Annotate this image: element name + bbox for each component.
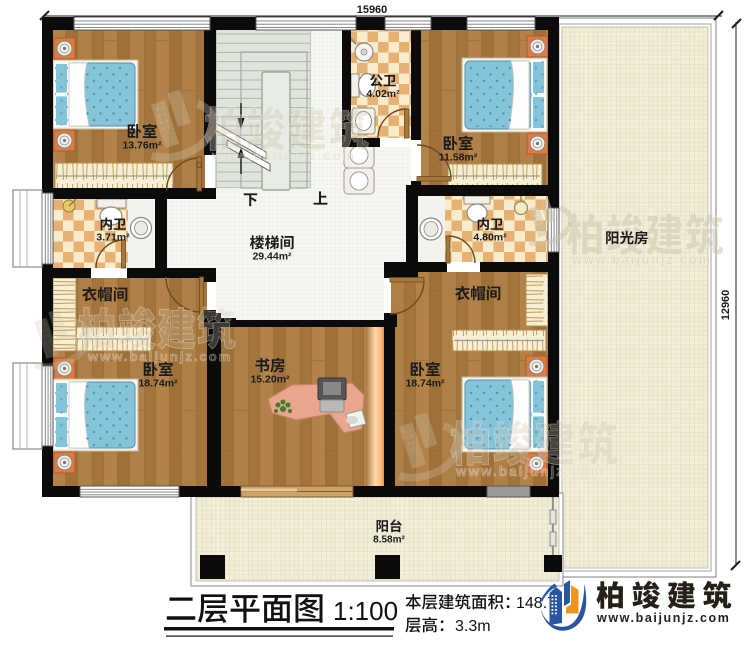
- svg-text:1:100: 1:100: [333, 596, 398, 626]
- svg-text:www.baijunjz.com: www.baijunjz.com: [87, 349, 232, 364]
- svg-text:18.74m²: 18.74m²: [138, 378, 178, 390]
- svg-text:18.74m²: 18.74m²: [405, 378, 445, 390]
- svg-text:29.44m²: 29.44m²: [252, 251, 292, 263]
- svg-text:3.3m: 3.3m: [455, 618, 491, 635]
- svg-text:12960: 12960: [720, 290, 732, 321]
- svg-text:www.baijunjz.com: www.baijunjz.com: [571, 253, 712, 267]
- svg-text:11.58m²: 11.58m²: [439, 152, 478, 164]
- svg-text:13.76m²: 13.76m²: [122, 140, 162, 152]
- svg-text:4.02m²: 4.02m²: [366, 88, 400, 100]
- svg-text:www.baijunjz.com: www.baijunjz.com: [596, 611, 730, 625]
- svg-text:15.20m²: 15.20m²: [250, 374, 290, 386]
- svg-text:4.80m²: 4.80m²: [473, 232, 507, 244]
- svg-text:15960: 15960: [357, 4, 388, 16]
- svg-text:www.baijunjz.com: www.baijunjz.com: [211, 148, 356, 163]
- svg-text:3.71m²: 3.71m²: [96, 232, 130, 244]
- svg-text:8.58m²: 8.58m²: [373, 535, 405, 546]
- svg-text:www.baijunjz.com: www.baijunjz.com: [455, 464, 605, 479]
